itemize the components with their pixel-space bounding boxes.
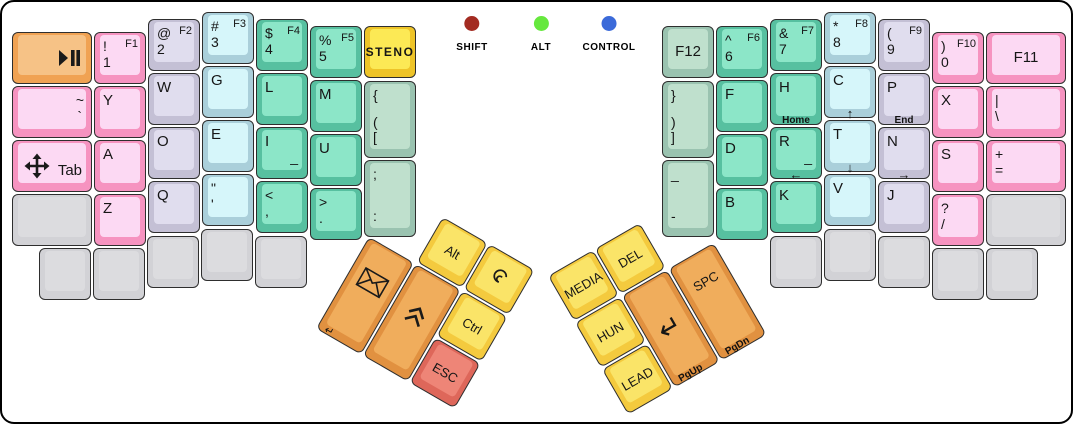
- key-legend: STENO: [365, 46, 415, 58]
- key-blank-r5[interactable]: [932, 248, 984, 300]
- key-backslash[interactable]: |\: [986, 86, 1066, 138]
- key-8[interactable]: *F88: [824, 12, 876, 64]
- key-legend: @: [157, 26, 171, 40]
- key-legend: Q: [157, 188, 169, 203]
- key-e[interactable]: E: [202, 120, 254, 172]
- key-legend: G: [211, 73, 223, 88]
- key-blank-r3[interactable]: [824, 229, 876, 281]
- key-legend: _: [290, 150, 298, 164]
- key-legend: L: [265, 80, 273, 95]
- key-legend: -: [671, 209, 676, 223]
- shift-led-label: SHIFT: [456, 42, 487, 53]
- key-legend: 4: [265, 42, 273, 56]
- key-legend: Z: [103, 201, 112, 216]
- keycap-top: [884, 239, 924, 279]
- shift-led-icon: [464, 16, 479, 31]
- control-led-icon: [601, 16, 616, 31]
- key-minus[interactable]: _-: [662, 160, 714, 237]
- key-k[interactable]: K: [770, 181, 822, 233]
- keycap-top: [992, 89, 1060, 129]
- key-i[interactable]: I_: [256, 127, 308, 179]
- key-legend: F12: [663, 44, 713, 59]
- key-legend: ,: [265, 204, 269, 218]
- alt-led-icon: [533, 16, 548, 31]
- key-t[interactable]: T↓: [824, 120, 876, 172]
- key-legend: Tab: [58, 163, 82, 178]
- key-legend: 7: [779, 42, 787, 56]
- key-legend: F1: [125, 39, 138, 50]
- key-4[interactable]: $F44: [256, 19, 308, 71]
- key-u[interactable]: U: [310, 134, 362, 186]
- key-legend: F4: [287, 26, 300, 37]
- key-legend: 3: [211, 35, 219, 49]
- key-legend: F2: [179, 26, 192, 37]
- key-legend: 0: [941, 55, 949, 69]
- key-legend: F11: [987, 50, 1065, 65]
- key-blank-l3[interactable]: [93, 248, 145, 300]
- key-legend: +: [995, 147, 1003, 161]
- key-w[interactable]: W: [148, 73, 200, 125]
- key-legend: |: [995, 93, 999, 107]
- key-legend: K: [779, 188, 789, 203]
- key-legend: :: [373, 209, 377, 223]
- key-tab[interactable]: Tab: [12, 140, 92, 192]
- key-legend: *: [833, 19, 838, 33]
- key-legend: !: [103, 39, 107, 53]
- key-q[interactable]: Q: [148, 181, 200, 233]
- key-legend: W: [157, 80, 171, 95]
- alt-led-label: ALT: [531, 42, 551, 53]
- key-legend: F: [725, 87, 734, 102]
- key-legend: ?: [941, 201, 949, 215]
- key-blank-l5[interactable]: [201, 229, 253, 281]
- key-legend: M: [319, 87, 332, 102]
- key-quote[interactable]: "': [202, 174, 254, 226]
- key-legend: (: [887, 26, 892, 40]
- key-m[interactable]: M: [310, 80, 362, 132]
- key-blank-r2[interactable]: [770, 236, 822, 288]
- keyboard: Alt↵CtrlESCMEDIADELHUN↵PgUpSPCPgDnLEAD~`…: [2, 2, 1071, 422]
- key-blank-r1[interactable]: [986, 194, 1066, 246]
- keycap-top: [99, 251, 139, 291]
- play-pause-icon: [58, 50, 81, 67]
- key-legend: 2: [157, 42, 165, 56]
- key-3[interactable]: #F33: [202, 12, 254, 64]
- key-legend: H: [779, 80, 790, 95]
- keycap-top: [18, 197, 86, 237]
- indicator-alt: ALT: [531, 16, 551, 53]
- key-legend: %: [319, 33, 331, 47]
- key-legend: 8: [833, 35, 841, 49]
- key-legend: `: [77, 109, 82, 123]
- key-legend: ;: [373, 167, 377, 181]
- key-legend: D: [725, 141, 736, 156]
- key-legend: =: [995, 163, 1003, 177]
- key-5[interactable]: %F55: [310, 26, 362, 78]
- key-legend: C: [833, 73, 844, 88]
- key-semicolon[interactable]: ;:: [364, 160, 416, 237]
- key-legend: _: [671, 167, 679, 181]
- key-legend: }: [671, 88, 676, 102]
- key-legend: ]: [671, 130, 675, 144]
- key-legend: I: [265, 134, 269, 149]
- key-blank-r6[interactable]: [986, 248, 1038, 300]
- keycap-top: [261, 239, 301, 279]
- key-front-legend: ↑: [825, 107, 875, 121]
- key-x[interactable]: X: [932, 86, 984, 138]
- key-legend: X: [941, 93, 951, 108]
- key-j[interactable]: J: [878, 181, 930, 233]
- key-legend: _: [804, 150, 812, 164]
- key-front-legend: ←: [771, 168, 821, 182]
- key-front-legend: ↓: [825, 161, 875, 175]
- key-legend: &: [779, 26, 788, 40]
- key-p[interactable]: PEnd: [878, 73, 930, 125]
- key-legend: 5: [319, 49, 327, 63]
- key-front-legend: End: [879, 115, 929, 126]
- key-legend: \: [995, 109, 999, 123]
- keycap-top: [938, 251, 978, 291]
- key-s[interactable]: S: [932, 140, 984, 192]
- key-legend: 1: [103, 55, 111, 69]
- key-r[interactable]: R_←: [770, 127, 822, 179]
- key-rbracket[interactable]: })]: [662, 81, 714, 158]
- key-1[interactable]: !F11: [94, 32, 146, 84]
- key-legend: .: [319, 211, 323, 225]
- key-legend: ~: [76, 93, 84, 107]
- keycap-top: [992, 197, 1060, 237]
- key-legend: F5: [341, 33, 354, 44]
- key-y[interactable]: Y: [94, 86, 146, 138]
- key-play-pause[interactable]: [12, 32, 92, 84]
- key-legend: E: [211, 127, 221, 142]
- keycap-top: [45, 251, 85, 291]
- key-a[interactable]: A: [94, 140, 146, 192]
- key-6[interactable]: ^F66: [716, 26, 768, 78]
- key-h[interactable]: HHome: [770, 73, 822, 125]
- key-blank-r4[interactable]: [878, 236, 930, 288]
- key-lbracket[interactable]: {([: [364, 81, 416, 158]
- keyboard-canvas: Alt↵CtrlESCMEDIADELHUN↵PgUpSPCPgDnLEAD~`…: [0, 0, 1073, 424]
- key-legend: (: [373, 115, 378, 129]
- keycap-top: [992, 251, 1032, 291]
- keycap-top: [153, 239, 193, 279]
- keycap-top: [830, 232, 870, 272]
- key-legend: F7: [801, 26, 814, 37]
- key-legend: [: [373, 130, 377, 144]
- key-front-legend: Home: [771, 115, 821, 126]
- key-c[interactable]: C↑: [824, 66, 876, 118]
- key-blank-l4[interactable]: [147, 236, 199, 288]
- key-d[interactable]: D: [716, 134, 768, 186]
- key-legend: F10: [957, 39, 976, 50]
- key-legend: 6: [725, 49, 733, 63]
- key-legend: B: [725, 195, 735, 210]
- key-z[interactable]: Z: [94, 194, 146, 246]
- key-l[interactable]: L: [256, 73, 308, 125]
- key-legend: ": [211, 181, 216, 195]
- key-front-legend: →: [879, 168, 929, 182]
- key-legend: >: [319, 195, 327, 209]
- key-f11[interactable]: F11: [986, 32, 1066, 84]
- key-legend: ): [941, 39, 946, 53]
- key-legend: $: [265, 26, 273, 40]
- keycap-top: [776, 239, 816, 279]
- key-o[interactable]: O: [148, 127, 200, 179]
- key-n[interactable]: N→: [878, 127, 930, 179]
- key-comma[interactable]: <,: [256, 181, 308, 233]
- key-legend: R: [779, 134, 790, 149]
- key-blank-l6[interactable]: [255, 236, 307, 288]
- key-legend: A: [103, 147, 113, 162]
- key-9[interactable]: (F99: [878, 19, 930, 71]
- key-legend: O: [157, 134, 169, 149]
- key-legend: <: [265, 188, 273, 202]
- key-legend: 9: [887, 42, 895, 56]
- key-legend: J: [887, 188, 895, 203]
- key-2[interactable]: @F22: [148, 19, 200, 71]
- key-f12[interactable]: F12: [662, 26, 714, 78]
- indicator-control: CONTROL: [583, 16, 636, 53]
- key-legend: U: [319, 141, 330, 156]
- key-legend: S: [941, 147, 951, 162]
- move-icon: [24, 153, 50, 179]
- key-legend: V: [833, 181, 843, 196]
- key-tilde[interactable]: ~`: [12, 86, 92, 138]
- key-f[interactable]: F: [716, 80, 768, 132]
- key-equals[interactable]: +=: [986, 140, 1066, 192]
- key-legend: P: [887, 80, 897, 95]
- key-0[interactable]: )F100: [932, 32, 984, 84]
- control-led-label: CONTROL: [583, 42, 636, 53]
- key-legend: ^: [725, 33, 732, 47]
- key-legend: N: [887, 134, 898, 149]
- key-legend: T: [833, 127, 842, 142]
- key-slash[interactable]: ?/: [932, 194, 984, 246]
- keycap-top: [207, 232, 247, 272]
- key-legend: F8: [855, 19, 868, 30]
- key-blank-l1[interactable]: [12, 194, 92, 246]
- key-legend: ': [211, 197, 214, 211]
- key-v[interactable]: V: [824, 174, 876, 226]
- indicator-shift: SHIFT: [456, 16, 487, 53]
- key-legend: ): [671, 115, 676, 129]
- key-legend: F6: [747, 33, 760, 44]
- key-b[interactable]: B: [716, 188, 768, 240]
- key-legend: #: [211, 19, 219, 33]
- key-blank-l2[interactable]: [39, 248, 91, 300]
- key-legend: F9: [909, 26, 922, 37]
- key-legend: /: [941, 217, 945, 231]
- key-7[interactable]: &F77: [770, 19, 822, 71]
- key-period[interactable]: >.: [310, 188, 362, 240]
- key-legend: Y: [103, 93, 113, 108]
- key-steno[interactable]: STENO: [364, 26, 416, 78]
- key-legend: F3: [233, 19, 246, 30]
- key-legend: {: [373, 88, 378, 102]
- key-g[interactable]: G: [202, 66, 254, 118]
